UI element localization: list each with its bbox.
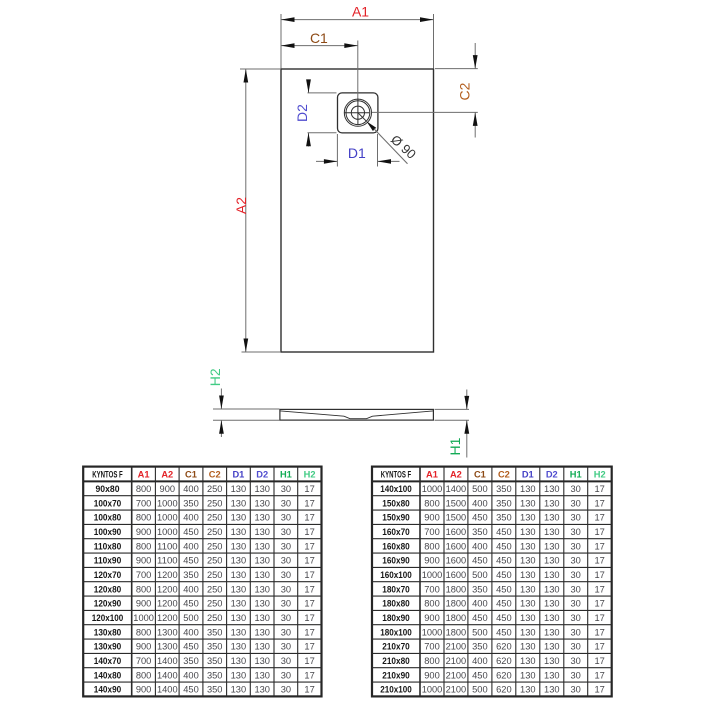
svg-text:30: 30 [571, 685, 581, 695]
svg-text:1000: 1000 [133, 613, 154, 623]
svg-text:250: 250 [207, 527, 223, 537]
svg-text:800: 800 [424, 599, 440, 609]
svg-text:130: 130 [231, 584, 247, 594]
svg-text:130: 130 [544, 584, 560, 594]
svg-text:250: 250 [207, 584, 223, 594]
svg-text:250: 250 [207, 613, 223, 623]
svg-text:17: 17 [595, 513, 605, 523]
svg-text:130: 130 [231, 484, 247, 494]
svg-text:30: 30 [571, 484, 581, 494]
svg-text:17: 17 [595, 584, 605, 594]
svg-text:1800: 1800 [446, 613, 467, 623]
svg-text:130: 130 [520, 570, 536, 580]
svg-text:140x100: 140x100 [380, 484, 412, 495]
svg-text:1500: 1500 [446, 498, 467, 508]
svg-text:350: 350 [472, 642, 488, 652]
svg-text:30: 30 [281, 584, 291, 594]
svg-text:1000: 1000 [422, 484, 443, 494]
svg-text:17: 17 [304, 613, 314, 623]
svg-text:450: 450 [183, 556, 199, 566]
svg-text:130: 130 [254, 484, 270, 494]
svg-text:130: 130 [544, 670, 560, 680]
svg-text:D1: D1 [348, 145, 366, 161]
svg-text:30: 30 [571, 656, 581, 666]
svg-text:2100: 2100 [446, 642, 467, 652]
svg-text:30: 30 [281, 556, 291, 566]
svg-text:17: 17 [304, 642, 314, 652]
svg-text:17: 17 [595, 670, 605, 680]
svg-text:210x100: 210x100 [380, 685, 412, 696]
svg-text:250: 250 [207, 484, 223, 494]
svg-text:30: 30 [281, 670, 291, 680]
svg-text:1600: 1600 [446, 570, 467, 580]
svg-text:30: 30 [571, 570, 581, 580]
svg-text:30: 30 [571, 613, 581, 623]
svg-text:17: 17 [304, 541, 314, 551]
svg-text:17: 17 [595, 642, 605, 652]
svg-text:350: 350 [207, 656, 223, 666]
svg-text:700: 700 [424, 527, 440, 537]
svg-text:350: 350 [207, 670, 223, 680]
svg-text:130: 130 [231, 498, 247, 508]
svg-text:2100: 2100 [446, 656, 467, 666]
svg-text:C2: C2 [498, 469, 510, 479]
svg-text:900: 900 [424, 670, 440, 680]
svg-text:130: 130 [520, 670, 536, 680]
svg-text:1100: 1100 [157, 556, 178, 566]
svg-text:130: 130 [520, 584, 536, 594]
svg-text:1800: 1800 [446, 584, 467, 594]
svg-text:130: 130 [254, 627, 270, 637]
svg-text:17: 17 [595, 570, 605, 580]
svg-text:A2: A2 [233, 197, 249, 214]
svg-text:17: 17 [595, 556, 605, 566]
svg-text:30: 30 [281, 498, 291, 508]
svg-text:130: 130 [544, 513, 560, 523]
svg-text:17: 17 [595, 627, 605, 637]
svg-text:1300: 1300 [157, 627, 178, 637]
svg-text:180x70: 180x70 [382, 584, 410, 595]
svg-text:250: 250 [207, 513, 223, 523]
svg-text:30: 30 [571, 556, 581, 566]
svg-text:130: 130 [231, 670, 247, 680]
svg-text:350: 350 [183, 498, 199, 508]
svg-text:130: 130 [254, 527, 270, 537]
svg-text:350: 350 [183, 656, 199, 666]
svg-text:1300: 1300 [157, 642, 178, 652]
svg-text:17: 17 [304, 670, 314, 680]
svg-text:130: 130 [254, 642, 270, 652]
svg-text:100x80: 100x80 [94, 513, 122, 524]
svg-text:130: 130 [520, 484, 536, 494]
svg-text:900: 900 [136, 527, 152, 537]
svg-text:1600: 1600 [446, 541, 467, 551]
svg-text:130: 130 [544, 613, 560, 623]
svg-text:A1: A1 [426, 469, 438, 479]
svg-text:30: 30 [571, 527, 581, 537]
svg-text:210x80: 210x80 [382, 656, 410, 667]
svg-text:17: 17 [304, 484, 314, 494]
svg-text:620: 620 [496, 642, 512, 652]
svg-text:17: 17 [595, 527, 605, 537]
svg-text:350: 350 [207, 627, 223, 637]
svg-text:150x80: 150x80 [382, 498, 410, 509]
svg-text:A1: A1 [352, 4, 369, 20]
svg-text:17: 17 [304, 498, 314, 508]
svg-text:130: 130 [544, 599, 560, 609]
svg-text:130: 130 [544, 656, 560, 666]
svg-text:30: 30 [281, 642, 291, 652]
svg-text:900: 900 [136, 556, 152, 566]
svg-text:250: 250 [207, 570, 223, 580]
svg-text:130: 130 [254, 584, 270, 594]
svg-text:30: 30 [571, 599, 581, 609]
svg-text:140x80: 140x80 [94, 670, 122, 681]
svg-text:130x90: 130x90 [94, 642, 122, 653]
svg-text:130: 130 [520, 685, 536, 695]
svg-text:700: 700 [136, 656, 152, 666]
svg-text:900: 900 [136, 599, 152, 609]
svg-text:130: 130 [520, 513, 536, 523]
svg-text:A2: A2 [161, 469, 173, 479]
svg-text:700: 700 [136, 498, 152, 508]
svg-text:130: 130 [254, 570, 270, 580]
svg-text:180x90: 180x90 [382, 613, 410, 624]
svg-text:130: 130 [231, 570, 247, 580]
svg-text:1600: 1600 [446, 556, 467, 566]
svg-text:800: 800 [136, 627, 152, 637]
svg-text:130: 130 [544, 498, 560, 508]
svg-text:400: 400 [183, 541, 199, 551]
svg-text:450: 450 [496, 627, 512, 637]
svg-text:400: 400 [183, 484, 199, 494]
svg-text:H2: H2 [304, 469, 316, 479]
svg-text:130: 130 [231, 656, 247, 666]
svg-text:400: 400 [472, 656, 488, 666]
svg-text:700: 700 [424, 642, 440, 652]
svg-text:2100: 2100 [446, 685, 467, 695]
svg-text:160x70: 160x70 [382, 527, 410, 538]
svg-text:1000: 1000 [422, 570, 443, 580]
svg-text:500: 500 [472, 570, 488, 580]
svg-text:130: 130 [520, 656, 536, 666]
svg-text:500: 500 [472, 484, 488, 494]
svg-text:17: 17 [304, 556, 314, 566]
svg-text:1400: 1400 [446, 484, 467, 494]
svg-text:800: 800 [136, 584, 152, 594]
svg-text:17: 17 [595, 599, 605, 609]
svg-text:130: 130 [520, 527, 536, 537]
svg-text:30: 30 [571, 670, 581, 680]
svg-text:130: 130 [520, 541, 536, 551]
svg-text:17: 17 [595, 685, 605, 695]
svg-text:30: 30 [571, 627, 581, 637]
svg-text:250: 250 [207, 599, 223, 609]
svg-text:120x90: 120x90 [94, 599, 122, 610]
svg-text:1200: 1200 [157, 584, 178, 594]
svg-text:D2: D2 [546, 469, 558, 479]
svg-text:130: 130 [254, 685, 270, 695]
svg-text:180x100: 180x100 [380, 627, 412, 638]
svg-text:500: 500 [472, 627, 488, 637]
svg-text:30: 30 [281, 656, 291, 666]
svg-text:400: 400 [472, 541, 488, 551]
svg-text:130: 130 [231, 642, 247, 652]
svg-text:130: 130 [520, 613, 536, 623]
svg-text:400: 400 [183, 627, 199, 637]
svg-text:800: 800 [424, 656, 440, 666]
svg-text:250: 250 [207, 541, 223, 551]
svg-text:210x90: 210x90 [382, 670, 410, 681]
svg-text:C1: C1 [310, 30, 328, 46]
svg-text:17: 17 [595, 484, 605, 494]
svg-text:17: 17 [595, 541, 605, 551]
svg-text:150x90: 150x90 [382, 513, 410, 524]
svg-text:130: 130 [544, 527, 560, 537]
svg-text:130: 130 [544, 570, 560, 580]
svg-text:700: 700 [136, 570, 152, 580]
svg-text:H2: H2 [594, 469, 606, 479]
svg-text:1400: 1400 [157, 670, 178, 680]
svg-text:450: 450 [183, 642, 199, 652]
svg-text:30: 30 [281, 627, 291, 637]
svg-text:180x80: 180x80 [382, 599, 410, 610]
svg-text:30: 30 [571, 513, 581, 523]
svg-text:H1: H1 [570, 469, 582, 479]
svg-text:400: 400 [183, 670, 199, 680]
svg-text:1000: 1000 [157, 513, 178, 523]
svg-text:400: 400 [472, 599, 488, 609]
svg-text:C2: C2 [457, 82, 473, 100]
svg-text:30: 30 [281, 513, 291, 523]
svg-text:350: 350 [472, 527, 488, 537]
svg-text:17: 17 [304, 584, 314, 594]
svg-text:450: 450 [496, 584, 512, 594]
svg-text:1200: 1200 [157, 599, 178, 609]
svg-text:1000: 1000 [422, 627, 443, 637]
svg-text:450: 450 [183, 685, 199, 695]
svg-text:620: 620 [496, 656, 512, 666]
svg-text:30: 30 [281, 570, 291, 580]
svg-text:900: 900 [136, 685, 152, 695]
svg-text:800: 800 [136, 484, 152, 494]
svg-text:17: 17 [304, 527, 314, 537]
svg-text:130: 130 [231, 513, 247, 523]
svg-text:17: 17 [304, 570, 314, 580]
svg-text:130: 130 [544, 556, 560, 566]
svg-text:90x80: 90x80 [96, 484, 120, 495]
svg-text:800: 800 [136, 541, 152, 551]
svg-text:17: 17 [595, 613, 605, 623]
svg-text:450: 450 [472, 513, 488, 523]
svg-text:130: 130 [231, 627, 247, 637]
svg-text:130: 130 [254, 670, 270, 680]
svg-text:1100: 1100 [157, 541, 178, 551]
svg-text:D2: D2 [294, 104, 310, 122]
svg-text:400: 400 [183, 513, 199, 523]
svg-text:2100: 2100 [446, 670, 467, 680]
svg-text:30: 30 [571, 541, 581, 551]
svg-text:500: 500 [472, 685, 488, 695]
svg-text:1000: 1000 [157, 527, 178, 537]
svg-text:130: 130 [520, 642, 536, 652]
svg-text:800: 800 [136, 513, 152, 523]
svg-text:30: 30 [281, 484, 291, 494]
svg-text:450: 450 [472, 613, 488, 623]
svg-text:130: 130 [544, 627, 560, 637]
svg-text:130: 130 [520, 599, 536, 609]
svg-text:30: 30 [571, 584, 581, 594]
svg-text:130: 130 [254, 613, 270, 623]
svg-text:800: 800 [424, 498, 440, 508]
svg-text:350: 350 [472, 584, 488, 594]
svg-text:400: 400 [472, 498, 488, 508]
svg-text:130: 130 [231, 527, 247, 537]
svg-text:500: 500 [183, 613, 199, 623]
svg-text:450: 450 [496, 599, 512, 609]
svg-text:1600: 1600 [446, 527, 467, 537]
svg-text:C1: C1 [185, 469, 197, 479]
svg-text:250: 250 [207, 498, 223, 508]
svg-text:900: 900 [424, 613, 440, 623]
svg-text:350: 350 [207, 685, 223, 695]
svg-text:130: 130 [520, 498, 536, 508]
svg-text:17: 17 [304, 599, 314, 609]
svg-text:160x80: 160x80 [382, 541, 410, 552]
svg-text:350: 350 [207, 642, 223, 652]
svg-text:450: 450 [183, 527, 199, 537]
svg-text:620: 620 [496, 685, 512, 695]
svg-text:1400: 1400 [157, 685, 178, 695]
svg-text:120x70: 120x70 [94, 570, 122, 581]
svg-text:620: 620 [496, 670, 512, 680]
svg-text:130: 130 [254, 498, 270, 508]
svg-text:130: 130 [231, 613, 247, 623]
svg-text:130: 130 [231, 685, 247, 695]
svg-text:700: 700 [424, 584, 440, 594]
svg-text:KYNTOS F: KYNTOS F [381, 469, 412, 479]
svg-text:17: 17 [595, 498, 605, 508]
svg-text:1400: 1400 [157, 656, 178, 666]
svg-text:130: 130 [231, 556, 247, 566]
svg-text:450: 450 [472, 670, 488, 680]
svg-text:120x80: 120x80 [94, 584, 122, 595]
svg-text:350: 350 [496, 513, 512, 523]
svg-text:140x70: 140x70 [94, 656, 122, 667]
svg-text:350: 350 [496, 484, 512, 494]
svg-text:1200: 1200 [157, 613, 178, 623]
svg-text:900: 900 [424, 556, 440, 566]
svg-text:17: 17 [304, 685, 314, 695]
svg-text:130: 130 [254, 556, 270, 566]
svg-text:H2: H2 [207, 368, 223, 386]
svg-text:100x90: 100x90 [94, 527, 122, 538]
svg-text:400: 400 [183, 584, 199, 594]
svg-text:110x80: 110x80 [94, 541, 122, 552]
svg-text:130: 130 [544, 685, 560, 695]
svg-text:D1: D1 [522, 469, 534, 479]
svg-text:800: 800 [136, 670, 152, 680]
svg-text:130: 130 [520, 556, 536, 566]
svg-text:450: 450 [496, 613, 512, 623]
svg-text:30: 30 [571, 498, 581, 508]
svg-text:210x70: 210x70 [382, 642, 410, 653]
svg-text:130: 130 [544, 541, 560, 551]
svg-text:450: 450 [472, 556, 488, 566]
svg-text:100x70: 100x70 [94, 498, 122, 509]
svg-text:800: 800 [424, 541, 440, 551]
svg-text:30: 30 [281, 599, 291, 609]
svg-text:17: 17 [304, 513, 314, 523]
svg-text:130: 130 [231, 599, 247, 609]
svg-text:130: 130 [231, 541, 247, 551]
svg-text:H1: H1 [280, 469, 292, 479]
svg-text:1800: 1800 [446, 599, 467, 609]
svg-text:H1: H1 [447, 437, 463, 455]
svg-text:17: 17 [304, 627, 314, 637]
svg-text:350: 350 [183, 570, 199, 580]
svg-text:130: 130 [520, 627, 536, 637]
svg-text:130: 130 [544, 484, 560, 494]
svg-text:17: 17 [304, 656, 314, 666]
svg-text:Ø 90: Ø 90 [388, 132, 419, 162]
svg-text:30: 30 [281, 541, 291, 551]
svg-text:160x100: 160x100 [380, 570, 412, 581]
svg-text:130: 130 [254, 599, 270, 609]
svg-text:450: 450 [496, 570, 512, 580]
svg-text:C2: C2 [209, 469, 221, 479]
svg-text:450: 450 [183, 599, 199, 609]
svg-text:900: 900 [136, 642, 152, 652]
svg-text:1500: 1500 [446, 513, 467, 523]
svg-text:110x90: 110x90 [94, 556, 122, 567]
svg-text:30: 30 [281, 685, 291, 695]
svg-text:A1: A1 [138, 469, 150, 479]
svg-text:450: 450 [496, 527, 512, 537]
svg-text:450: 450 [496, 541, 512, 551]
svg-text:130x80: 130x80 [94, 627, 122, 638]
svg-text:140x90: 140x90 [94, 685, 122, 696]
svg-text:30: 30 [281, 527, 291, 537]
svg-text:130: 130 [544, 642, 560, 652]
svg-text:1800: 1800 [446, 627, 467, 637]
svg-text:900: 900 [160, 484, 176, 494]
svg-text:30: 30 [281, 613, 291, 623]
svg-text:1200: 1200 [157, 570, 178, 580]
svg-text:450: 450 [496, 556, 512, 566]
svg-text:A2: A2 [450, 469, 462, 479]
svg-text:350: 350 [496, 498, 512, 508]
svg-text:130: 130 [254, 513, 270, 523]
svg-text:130: 130 [254, 541, 270, 551]
svg-text:130: 130 [254, 656, 270, 666]
svg-text:17: 17 [595, 656, 605, 666]
svg-text:160x90: 160x90 [382, 556, 410, 567]
svg-text:1000: 1000 [422, 685, 443, 695]
svg-text:250: 250 [207, 556, 223, 566]
svg-text:KYNTOS F: KYNTOS F [92, 469, 123, 479]
svg-text:1000: 1000 [157, 498, 178, 508]
svg-text:C1: C1 [474, 469, 486, 479]
svg-text:900: 900 [424, 513, 440, 523]
svg-text:D1: D1 [232, 469, 244, 479]
svg-text:D2: D2 [256, 469, 268, 479]
svg-text:30: 30 [571, 642, 581, 652]
svg-text:120x100: 120x100 [92, 613, 124, 624]
